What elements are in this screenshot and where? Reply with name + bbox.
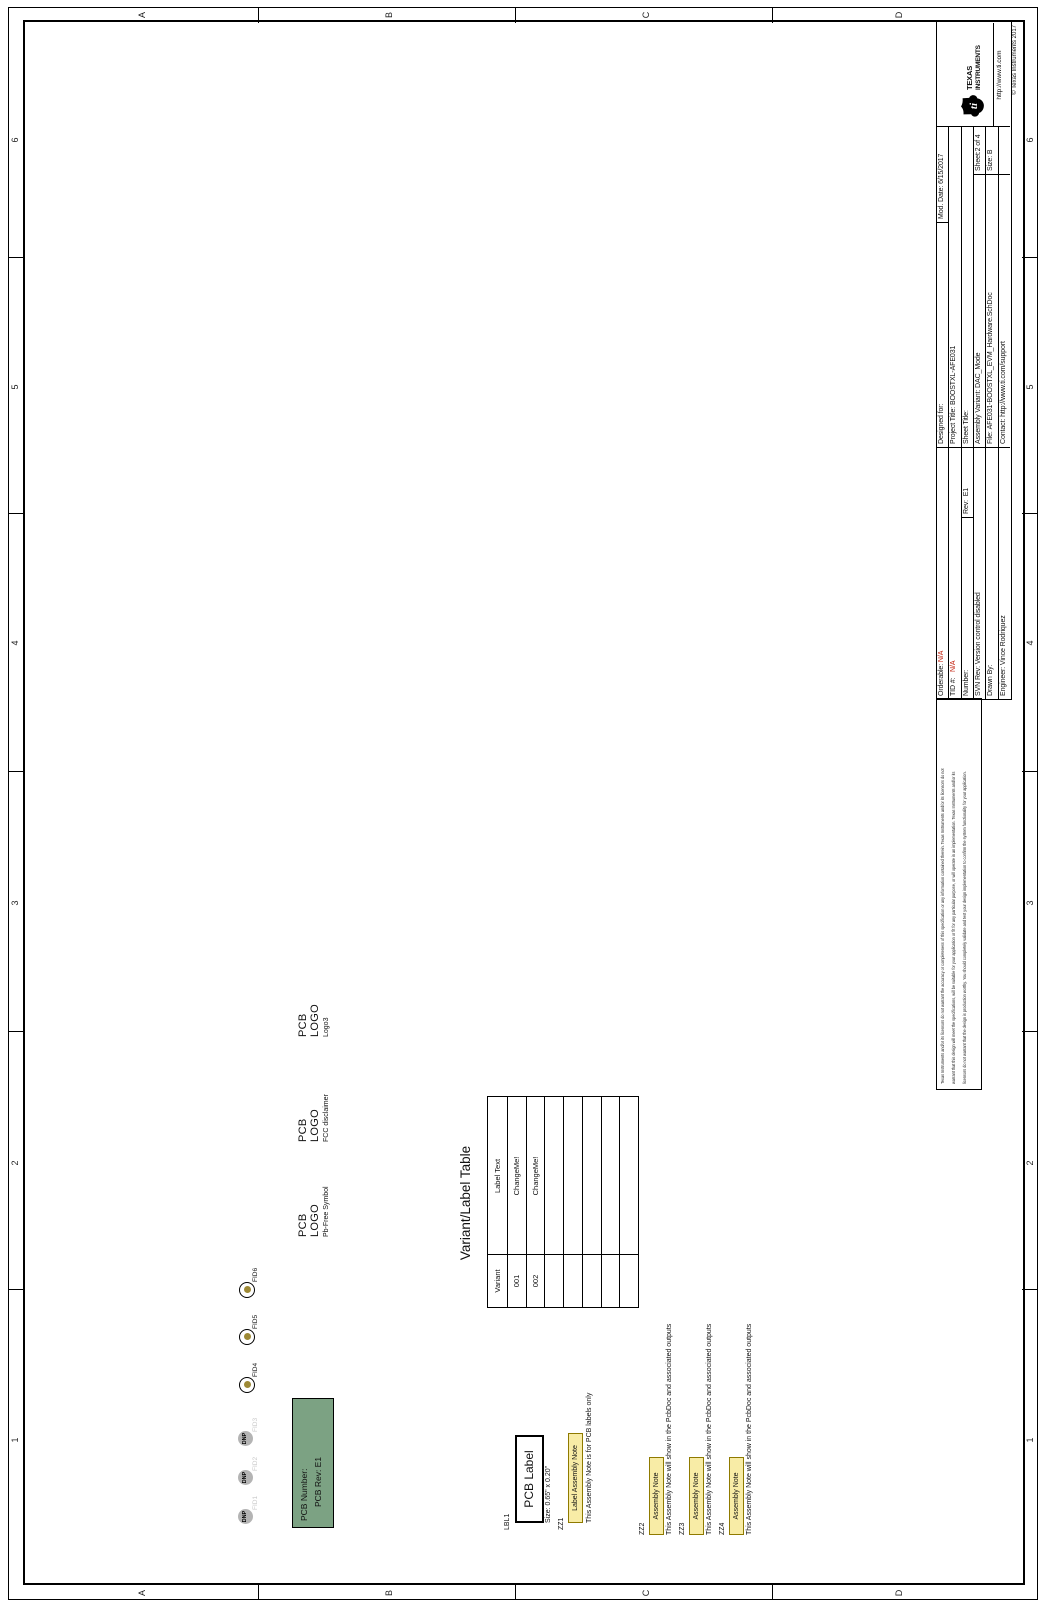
pcb-logo-subtitle: Pb-Free Symbol	[321, 1186, 333, 1237]
svn-row: SVN Rev: Version control disabled	[973, 592, 985, 696]
note-title-box: Assembly Note	[729, 1457, 744, 1535]
pcb-label-box: PCB Label	[515, 1435, 544, 1523]
zone-tick	[1022, 771, 1037, 772]
orderable-label: Orderable:	[938, 664, 945, 696]
zone-tick	[515, 8, 516, 23]
mod-date-value: 6/15/2017	[938, 154, 945, 184]
pcb-logo-line2: LOGO	[309, 1004, 321, 1037]
zone-letter-right-b: B	[382, 8, 396, 22]
zone-number-bottom-5: 5	[1023, 380, 1037, 394]
zone-number-bottom-1: 1	[1023, 1433, 1037, 1447]
zone-letter-left-d: D	[892, 1586, 906, 1600]
note-title-box: Assembly Note	[689, 1457, 704, 1535]
copyright-text: © Texas Instruments 2017	[1012, 25, 1018, 223]
table-cell: ChangeMe!	[512, 1097, 521, 1255]
pcb-logo-line1: PCB	[297, 1094, 309, 1142]
fiducial-label: FID4	[252, 1363, 259, 1377]
sheet-number-cell: Sheet:2 of 4	[973, 134, 985, 171]
fiducial-dot-icon	[244, 1287, 251, 1294]
project-title-value: BOOSTXL-AFE031	[950, 346, 957, 405]
pcb-rev-text: PCB Rev: E1	[313, 1457, 323, 1507]
engineer-value: Vince Rodriquez	[1000, 615, 1007, 665]
pcb-label-ref: LBL1	[504, 1514, 511, 1530]
fiducial-label: FID2	[252, 1457, 259, 1471]
zone-tick	[8, 257, 23, 258]
note-ref: ZZ2	[639, 1523, 646, 1535]
tid-value: N/A	[950, 661, 957, 672]
zone-number-top-6: 6	[8, 133, 22, 147]
disclaimer-line-3: licensors do not warrant that the design…	[963, 771, 968, 1084]
zone-tick	[258, 8, 259, 23]
screenshot-root: { "sheet": { "zone_letters": ["A","B","C…	[0, 0, 1045, 1608]
designed-for-label: Designed for:	[938, 404, 945, 444]
zone-letter-right-a: A	[135, 8, 149, 22]
table-cell: 001	[512, 1255, 521, 1307]
size-label: Size:	[987, 156, 994, 171]
zone-letter-right-d: D	[892, 8, 906, 22]
note-ref: ZZ1	[558, 1518, 565, 1530]
note-ref: ZZ3	[679, 1523, 686, 1535]
ti-url: http://www.ti.com	[996, 23, 1003, 127]
mod-date-cell: Mod. Date: 6/15/2017	[936, 154, 948, 219]
note-title-box: Label Assembly Note	[568, 1433, 583, 1523]
disclaimer-box: Texas Instruments and/or its licensors d…	[936, 698, 982, 1090]
titleblock-cell-divider	[961, 517, 973, 518]
zone-number-top-4: 4	[8, 636, 22, 650]
sheet-number-value: 2 of 4	[975, 134, 982, 151]
disclaimer-line-2: warrant that this design will meet the s…	[952, 772, 957, 1084]
zone-tick	[8, 1031, 23, 1032]
note-text: This Assembly Note is for PCB labels onl…	[586, 1393, 593, 1523]
note-title-box: Assembly Note	[649, 1457, 664, 1535]
pcb-number-box: PCB Number: PCB Rev: E1	[292, 1398, 334, 1528]
titleblock-cell-divider	[973, 174, 1010, 175]
pcb-label-size: Size: 0.65" x 0.20"	[545, 1466, 552, 1523]
mod-date-label: Mod. Date:	[938, 186, 945, 219]
table-cell: ChangeMe!	[531, 1097, 540, 1255]
fiducial-label: FID3	[252, 1418, 259, 1432]
sheet-title-label: Sheet Title:	[963, 410, 970, 444]
note-text: This Assembly Note will show in the PcbD…	[746, 1324, 753, 1535]
drawn-by-label: Drawn By:	[987, 665, 994, 696]
ti-logo-icon: ti	[960, 94, 991, 118]
table-row-line	[601, 1097, 602, 1307]
fiducial-icon	[239, 1282, 255, 1298]
note-ref: ZZ4	[719, 1523, 726, 1535]
zone-number-top-2: 2	[8, 1156, 22, 1170]
fiducial-icon	[239, 1329, 255, 1345]
svg-text:ti: ti	[968, 102, 980, 109]
note-text: This Assembly Note will show in the PcbD…	[706, 1324, 713, 1535]
orderable-value: N/A	[938, 651, 945, 662]
svn-label: SVN Rev:	[975, 666, 982, 696]
tid-row: TID #: N/A	[948, 661, 960, 696]
titleblock-section-divider	[936, 447, 1010, 448]
zone-number-bottom-6: 6	[1023, 133, 1037, 147]
table-cell: 002	[531, 1255, 540, 1307]
table-row-line	[544, 1097, 545, 1307]
fiducial-label: FID1	[252, 1496, 259, 1510]
engineer-label: Engineer:	[1000, 667, 1007, 696]
note-text: This Assembly Note will show in the PcbD…	[666, 1324, 673, 1535]
dnp-marker-icon: DNP	[238, 1470, 253, 1485]
zone-letter-right-c: C	[639, 8, 653, 22]
zone-tick	[8, 513, 23, 514]
variant-table-title: Variant/Label Table	[458, 1098, 473, 1308]
file-row: File: AFE031-BOOSTXL_EVM_Hardware.SchDoc	[985, 292, 997, 444]
pcb-logo-line1: PCB	[297, 1186, 309, 1237]
assembly-variant-row: Assembly Variant: DAC_Mode	[973, 353, 985, 444]
rev-value: E1	[963, 488, 970, 496]
number-row: Number:	[961, 670, 973, 696]
zone-tick	[1022, 257, 1037, 258]
tid-label: TID #:	[950, 678, 957, 696]
fiducial-dot-icon	[244, 1334, 251, 1341]
table-row-line	[563, 1097, 564, 1307]
dnp-marker-icon: DNP	[238, 1509, 253, 1524]
sheet-number-label: Sheet:	[975, 151, 982, 171]
zone-tick	[515, 1585, 516, 1600]
contact-label: Contact:	[1000, 419, 1007, 444]
orderable-row: Orderable: N/A	[936, 651, 948, 696]
variant-table-grid: Variant Label Text 001 ChangeMe! 002 Cha…	[487, 1096, 639, 1308]
table-header-labeltext: Label Text	[493, 1097, 502, 1255]
pcb-logo-subtitle: FCC disclaimer	[321, 1094, 333, 1142]
assembly-variant-label: Assembly Variant:	[975, 390, 982, 444]
titleblock-cell-divider	[936, 222, 948, 223]
rev-label: Rev:	[963, 500, 970, 514]
number-label: Number:	[963, 670, 970, 696]
svn-value: Version control disabled	[975, 592, 982, 664]
zone-number-bottom-2: 2	[1023, 1156, 1037, 1170]
file-value: AFE031-BOOSTXL_EVM_Hardware.SchDoc	[987, 292, 994, 429]
schematic-sheet: A B C D A B C D 1 2 3 4 5 6 1 2 3 4 5 6 …	[0, 0, 1045, 1608]
table-header-variant: Variant	[493, 1255, 502, 1307]
designed-for-row: Designed for:	[936, 404, 948, 444]
table-row-line	[582, 1097, 583, 1307]
fiducial-label: FID5	[252, 1315, 259, 1329]
zone-number-bottom-3: 3	[1023, 896, 1037, 910]
pcb-logo-line2: LOGO	[309, 1186, 321, 1237]
zone-number-top-1: 1	[8, 1433, 22, 1447]
size-cell: Size: B	[985, 150, 997, 172]
zone-tick	[8, 1289, 23, 1290]
zone-tick	[1022, 1031, 1037, 1032]
zone-number-bottom-4: 4	[1023, 636, 1037, 650]
pcb-logo-subtitle: Logo3	[321, 1004, 333, 1037]
pcb-logo-logo3: PCB LOGO Logo3	[297, 1004, 333, 1037]
zone-number-top-5: 5	[8, 380, 22, 394]
table-row-line	[507, 1097, 508, 1307]
sheet-inner-border	[23, 20, 1025, 1585]
rev-cell: Rev: E1	[961, 488, 973, 514]
zone-tick	[772, 8, 773, 23]
zone-tick	[1022, 513, 1037, 514]
ti-logo-name-line1: TEXAS	[966, 66, 974, 90]
titleblock-cell-divider	[993, 23, 994, 127]
zone-tick	[772, 1585, 773, 1600]
zone-tick	[1022, 1289, 1037, 1290]
assembly-variant-value: DAC_Mode	[975, 353, 982, 388]
pcb-number-text: PCB Number:	[299, 1469, 309, 1521]
pcb-logo-pbfree: PCB LOGO Pb-Free Symbol	[297, 1186, 333, 1237]
sheet-title-row: Sheet Title:	[961, 410, 973, 444]
zone-tick	[258, 1585, 259, 1600]
zone-letter-left-c: C	[639, 1586, 653, 1600]
file-label: File:	[987, 431, 994, 444]
contact-row: Contact: http://www.ti.com/support	[998, 341, 1010, 444]
zone-letter-left-a: A	[135, 1586, 149, 1600]
zone-letter-left-b: B	[382, 1586, 396, 1600]
drawn-by-row: Drawn By:	[985, 665, 997, 696]
fiducial-icon	[239, 1377, 255, 1393]
disclaimer-line-1: Texas Instruments and/or its licensors d…	[941, 768, 946, 1084]
size-value: B	[987, 150, 994, 155]
project-title-row: Project Title: BOOSTXL-AFE031	[948, 346, 960, 444]
fiducial-dot-icon	[244, 1382, 251, 1389]
ti-logo-name-line2: INSTRUMENTS	[975, 45, 983, 90]
pcb-logo-line1: PCB	[297, 1004, 309, 1037]
project-title-label: Project Title:	[950, 407, 957, 444]
dnp-marker-icon: DNP	[238, 1431, 253, 1446]
zone-number-top-3: 3	[8, 896, 22, 910]
pcb-logo-fcc: PCB LOGO FCC disclaimer	[297, 1094, 333, 1142]
zone-tick	[8, 771, 23, 772]
pcb-logo-line2: LOGO	[309, 1094, 321, 1142]
engineer-row: Engineer: Vince Rodriquez	[998, 615, 1010, 696]
table-row-line	[619, 1097, 620, 1307]
contact-value: http://www.ti.com/support	[1000, 341, 1007, 417]
fiducial-label: FID6	[252, 1268, 259, 1282]
table-row-line	[526, 1097, 527, 1307]
